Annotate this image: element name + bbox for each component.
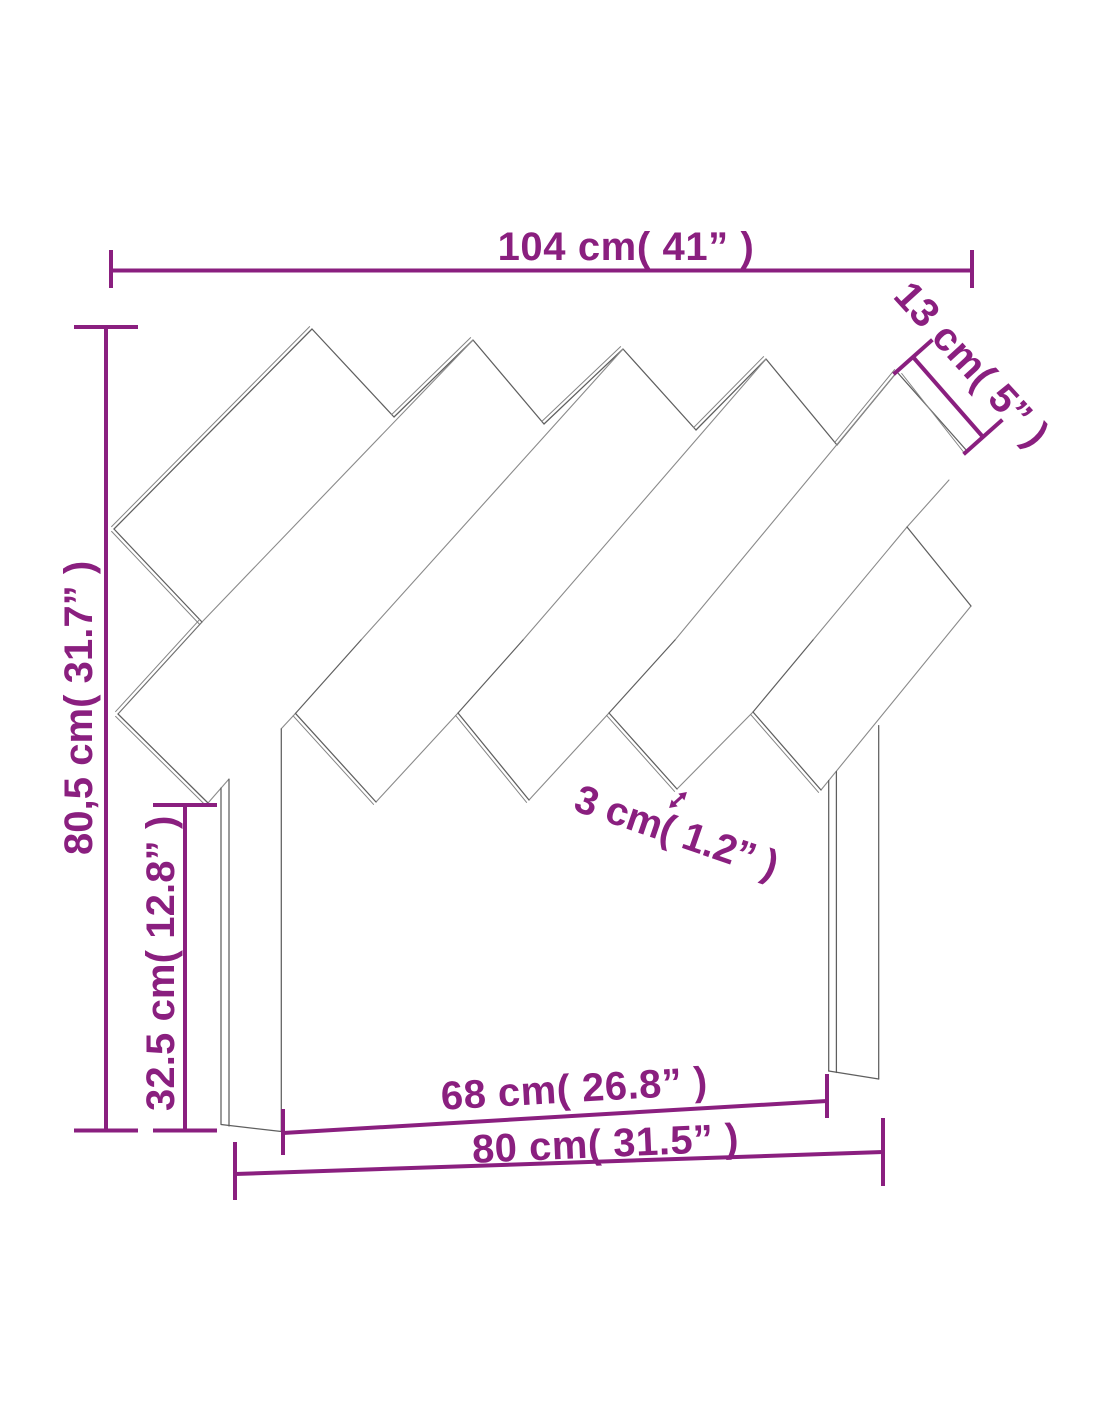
svg-text:80 cm( 31.5” ): 80 cm( 31.5” ) (471, 1116, 740, 1172)
svg-text:32.5 cm( 12.8” ): 32.5 cm( 12.8” ) (139, 816, 183, 1111)
svg-text:104 cm( 41” ): 104 cm( 41” ) (498, 225, 755, 269)
svg-text:3 cm( 1.2” ): 3 cm( 1.2” ) (569, 777, 784, 888)
svg-text:80,5 cm( 31.7” ): 80,5 cm( 31.7” ) (57, 561, 101, 855)
svg-text:13 cm( 5” ): 13 cm( 5” ) (885, 273, 1057, 455)
